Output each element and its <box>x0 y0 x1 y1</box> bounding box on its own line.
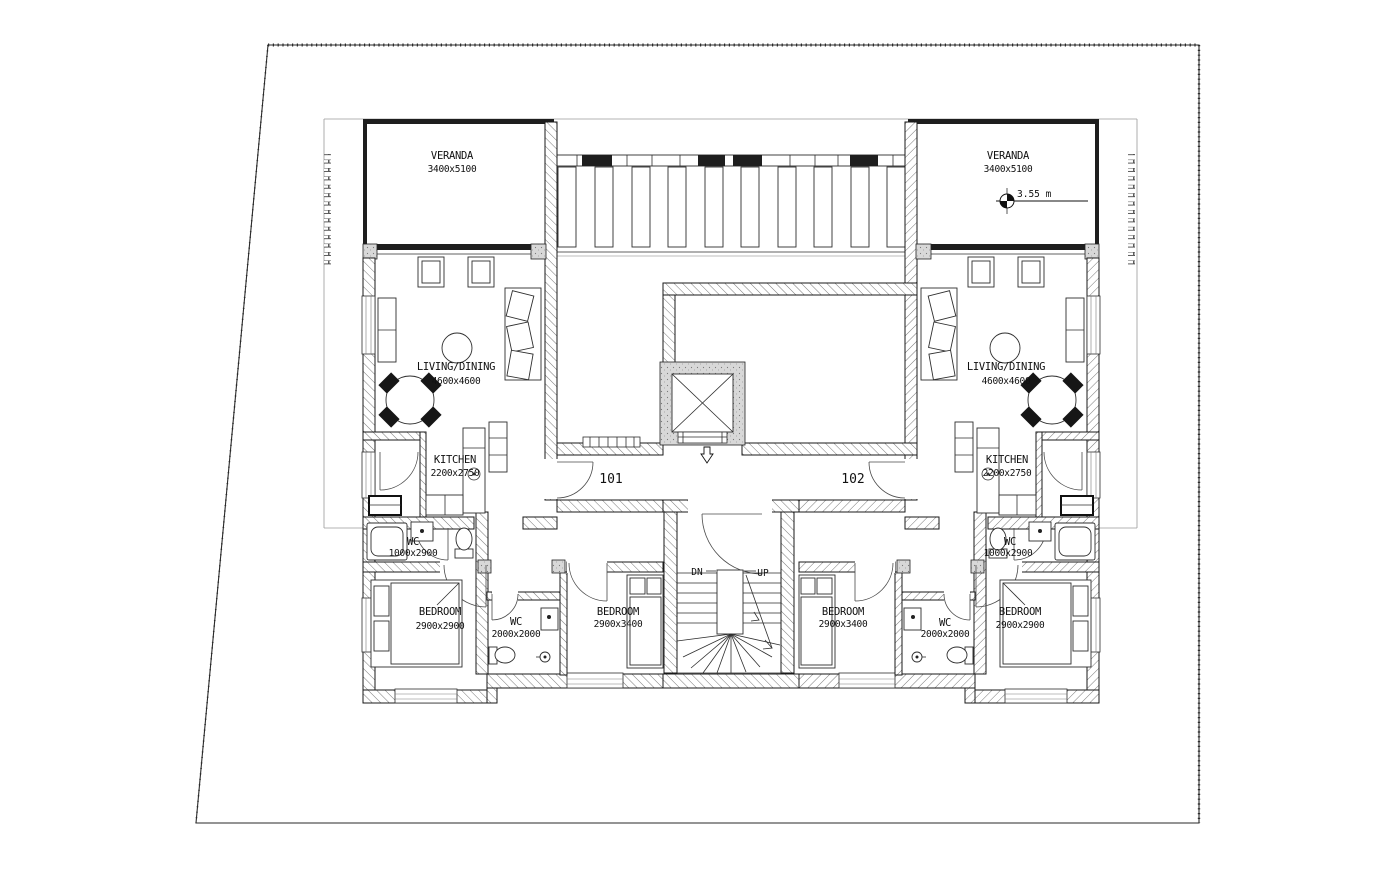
stair-newel <box>717 570 743 634</box>
room-dims-bedroom-inner-right: 2900x3400 <box>819 619 868 630</box>
pergola <box>557 155 905 256</box>
room-dims-veranda-left: 3400x5100 <box>428 164 477 175</box>
corridor-entry-arrow <box>701 447 713 463</box>
room-label-bedroom-outer-left: BEDROOM <box>419 606 461 618</box>
room-dims-bedroom-inner-left: 2900x3400 <box>594 619 643 630</box>
room-label-veranda-left: VERANDA <box>431 150 474 162</box>
room-dims-living-left: 4600x4600 <box>432 376 481 387</box>
room-label-kitchen-right: KITCHEN <box>986 454 1028 466</box>
staircase <box>663 512 799 688</box>
room-label-bedroom-inner-left: BEDROOM <box>597 606 639 618</box>
room-label-wc-inner-right: WC <box>939 617 951 629</box>
room-dims-wc-right: 1000x2900 <box>984 548 1033 559</box>
room-dims-kitchen-left: 2200x2750 <box>431 468 480 479</box>
room-dims-wc-inner-right: 2000x2000 <box>921 629 970 640</box>
room-label-living-left: LIVING/DINING <box>417 361 495 373</box>
unit-number-101: 101 <box>599 472 622 487</box>
stair-label-dn: DN <box>691 567 703 578</box>
room-label-bedroom-inner-right: BEDROOM <box>822 606 864 618</box>
room-dims-bedroom-outer-right: 2900x2900 <box>996 620 1045 631</box>
room-dims-wc-left: 1000x2900 <box>389 548 438 559</box>
room-label-wc-right: WC <box>1004 536 1016 548</box>
corridor-vent-grille <box>583 437 640 447</box>
stair-label-up: UP <box>757 568 769 579</box>
room-label-veranda-right: VERANDA <box>987 150 1030 162</box>
room-label-bedroom-outer-right: BEDROOM <box>999 606 1041 618</box>
room-dims-bedroom-outer-left: 2900x2900 <box>416 621 465 632</box>
unit-number-102: 102 <box>841 472 864 487</box>
level-marker-value: 3.55 m <box>1017 189 1052 200</box>
level-marker: 3.55 m <box>996 188 1088 214</box>
room-dims-veranda-right: 3400x5100 <box>984 164 1033 175</box>
room-dims-living-right: 4600x4600 <box>982 376 1031 387</box>
setback-outline <box>324 119 1137 528</box>
elevator <box>660 362 745 463</box>
room-dims-wc-inner-left: 2000x2000 <box>492 629 541 640</box>
room-label-living-right: LIVING/DINING <box>967 361 1045 373</box>
floor-plan-canvas: 3.55 m VERANDA 3400x5100 VERANDA 3400x51… <box>0 0 1390 894</box>
room-label-kitchen-left: KITCHEN <box>434 454 476 466</box>
room-dims-kitchen-right: 2200x2750 <box>983 468 1032 479</box>
room-label-wc-left: WC <box>407 536 419 548</box>
room-label-wc-inner-left: WC <box>510 616 522 628</box>
stair-direction-arrow <box>746 575 772 648</box>
